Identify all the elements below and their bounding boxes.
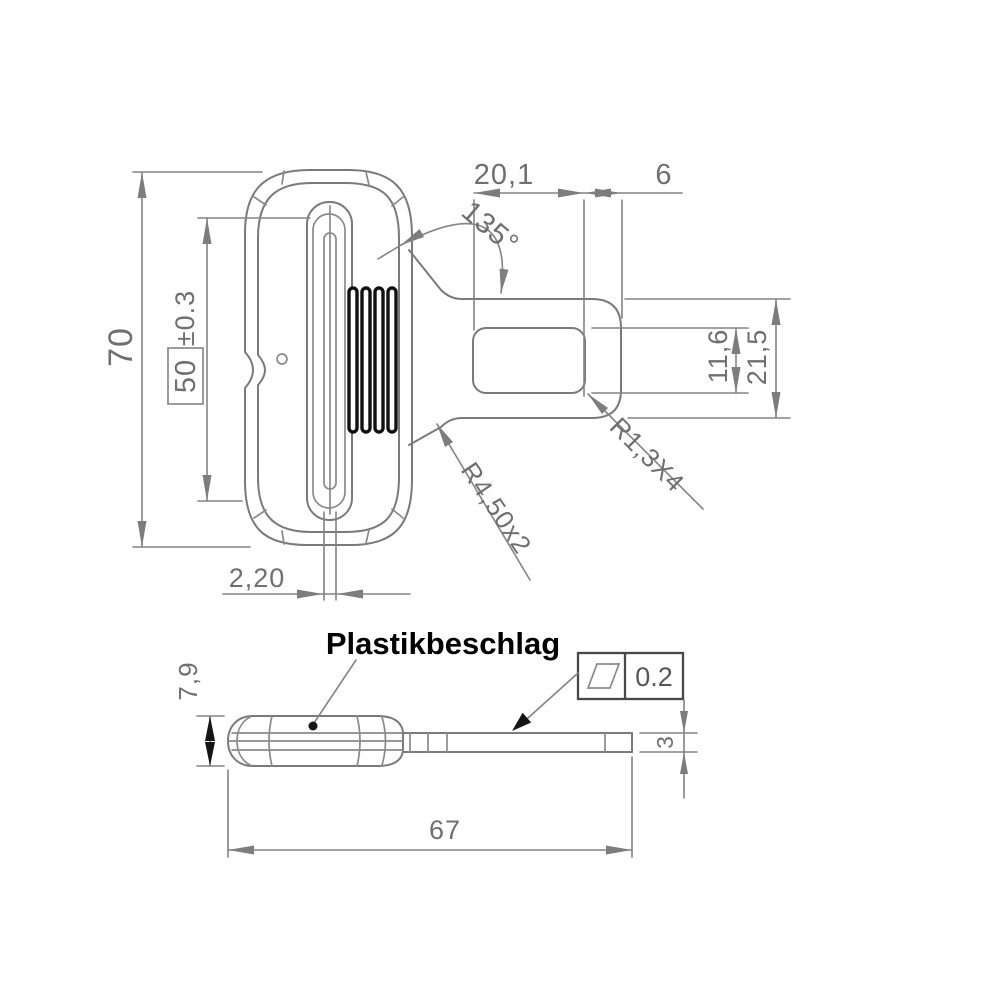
dim-text-slot-length: 50 — [170, 359, 202, 393]
dim-tongue-thickness: 3 — [640, 700, 697, 798]
dim-arrow — [205, 716, 215, 741]
leader-text-neck-fillet-radius: R4,50x2 — [455, 457, 538, 560]
leader-slot-corner-radius: R1,3X4 — [588, 394, 703, 509]
dim-text-body-thickness: 7,9 — [173, 661, 203, 700]
dim-text-web-slot-width: 2,20 — [229, 563, 286, 593]
dim-arrow — [772, 299, 781, 325]
dim-text-tongue-tip-length: 6 — [655, 159, 672, 191]
fcf-leader-arrow — [512, 713, 531, 731]
rim-tick — [366, 172, 369, 185]
dim-arrow — [205, 742, 215, 766]
dim-arrow — [558, 189, 584, 198]
dim-text-slot-tolerance: ±0.3 — [170, 290, 200, 346]
leader-arrow — [588, 394, 608, 414]
grip-rib — [362, 288, 370, 432]
dim-overall-length: 67 — [228, 757, 632, 857]
side-tongue — [403, 733, 632, 752]
grip-rib — [388, 288, 396, 432]
dim-arrow — [297, 590, 323, 599]
fcf-tolerance-text: 0.2 — [635, 662, 673, 692]
dim-slot-length: 50 ±0.3 — [168, 218, 310, 501]
rim-tick — [254, 197, 266, 205]
dim-text-tongue-slot-length: 20,1 — [474, 159, 534, 191]
dim-text-tongue-thickness: 3 — [652, 735, 678, 749]
side-view: Plastikbeschlag 0.2 7,9 — [173, 626, 697, 857]
dim-text-neck-angle: 135° — [455, 195, 525, 261]
dim-arrow — [203, 218, 212, 244]
rim-tick — [392, 197, 403, 206]
dim-arrow — [606, 846, 632, 855]
dim-text-tongue-slot-height: 11,6 — [703, 329, 733, 384]
tongue-outline — [409, 250, 621, 445]
dim-arrow — [337, 590, 363, 599]
dim-text-tongue-height: 21,5 — [742, 329, 772, 386]
part-label: Plastikbeschlag — [326, 626, 560, 661]
rim-tick — [392, 509, 403, 518]
dim-tongue-slot-height: 11,6 — [592, 328, 748, 393]
tongue-slot — [473, 328, 585, 393]
top-view: 70 50 ±0.3 2,20 — [102, 159, 790, 600]
dim-arrow — [203, 475, 212, 501]
leader-neck-fillet-radius: R4,50x2 — [437, 424, 538, 580]
dim-neck-angle: 135° — [378, 195, 525, 293]
dim-arrow — [500, 269, 509, 293]
grip-rib — [375, 288, 383, 432]
rim-tick — [254, 510, 266, 518]
technical-drawing-canvas: 70 50 ±0.3 2,20 — [0, 0, 1000, 1000]
rim-tick — [366, 530, 369, 543]
grip-rib — [349, 288, 357, 432]
flatness-frame: 0.2 — [512, 653, 683, 731]
leader-dot — [309, 722, 318, 731]
dim-body-thickness: 7,9 — [173, 661, 224, 766]
dim-text-overall-height: 70 — [102, 327, 140, 367]
pin-hole — [277, 354, 287, 364]
web-slot-mid — [313, 214, 345, 508]
dim-arrow — [138, 172, 147, 198]
dim-arrow — [228, 846, 254, 855]
dim-arrow — [138, 521, 147, 547]
dim-web-slot-width: 2,20 — [223, 512, 410, 600]
dim-text-overall-length: 67 — [429, 815, 461, 845]
dim-arrow — [680, 711, 688, 733]
dim-arrow — [680, 752, 688, 774]
leader-arrow — [437, 424, 453, 447]
dim-arrow — [772, 392, 781, 418]
leader-text-slot-corner-radius: R1,3X4 — [604, 411, 691, 498]
